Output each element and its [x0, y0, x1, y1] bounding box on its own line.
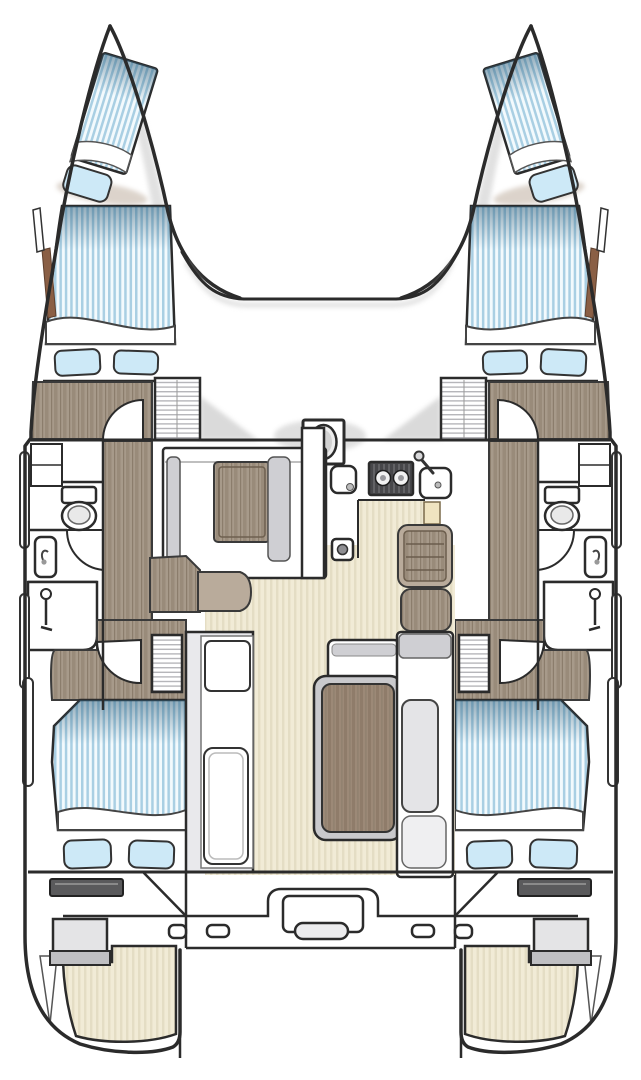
cutting-board-kettle — [424, 502, 440, 524]
bow-white-strip — [33, 208, 44, 252]
bathroom — [28, 482, 103, 650]
settee-backrest-right — [268, 457, 290, 561]
cleat-port-inner — [207, 925, 229, 937]
aft-pillow-left — [64, 839, 112, 869]
cleat-starboard-inner — [412, 925, 434, 937]
cleat-starboard-outer — [455, 925, 472, 938]
starboard-step-treads — [404, 531, 446, 581]
faucet-sink-drain — [435, 482, 441, 488]
sink-drain — [41, 559, 46, 564]
l-bench-back-cushion — [402, 700, 438, 812]
forward-pillow-left — [54, 349, 100, 376]
forward-mattress-shade — [56, 206, 172, 250]
bathroom-door-swing — [67, 530, 103, 570]
starboard-lower-step — [401, 589, 451, 631]
toilet-bowl-inner — [68, 506, 90, 524]
small-appliance-knob — [338, 545, 348, 555]
settee-backrest-left — [167, 457, 180, 563]
forward-bench-back — [332, 644, 396, 656]
aft-mattress-shade — [54, 700, 186, 744]
companionway-steps-starboard — [398, 525, 452, 631]
aft-cabin-bed — [52, 700, 186, 869]
forward-cabin-bed — [43, 206, 175, 381]
side-bench-seat-aft — [204, 748, 248, 864]
floor-plan-canvas — [0, 0, 641, 1080]
aft-pillow-right — [129, 840, 175, 869]
partition-wall — [302, 428, 324, 578]
stove-burner-left-center — [380, 475, 386, 481]
side-bench-seat-fwd — [205, 641, 250, 691]
vanity-sink — [35, 537, 56, 577]
forward-settee — [163, 428, 326, 578]
l-bench-top-cushion — [399, 634, 451, 658]
shower-enclosure — [28, 582, 97, 650]
toilet-tank — [62, 487, 96, 503]
companionway-seat-port — [198, 572, 251, 611]
faucet-head — [415, 452, 424, 461]
companionway-steps-port — [150, 556, 200, 612]
aft-cockpit — [63, 889, 578, 948]
hatch-handle — [295, 923, 348, 939]
shower-head — [41, 589, 51, 599]
dining-table-top — [322, 684, 394, 832]
forward-pillow-right — [114, 350, 159, 375]
storage-box-lip — [50, 951, 110, 965]
transom-diagonal — [143, 872, 186, 916]
coffee-table — [214, 462, 270, 542]
coachroof-shadow-wedge — [200, 396, 258, 440]
stove-burner-right-center — [398, 475, 404, 481]
galley-sink-drain — [347, 484, 354, 491]
louvered-locker — [152, 635, 182, 692]
cleat-port-outer — [169, 925, 186, 938]
l-bench-seat-aft — [402, 816, 446, 868]
transom-step-bar — [50, 879, 123, 896]
